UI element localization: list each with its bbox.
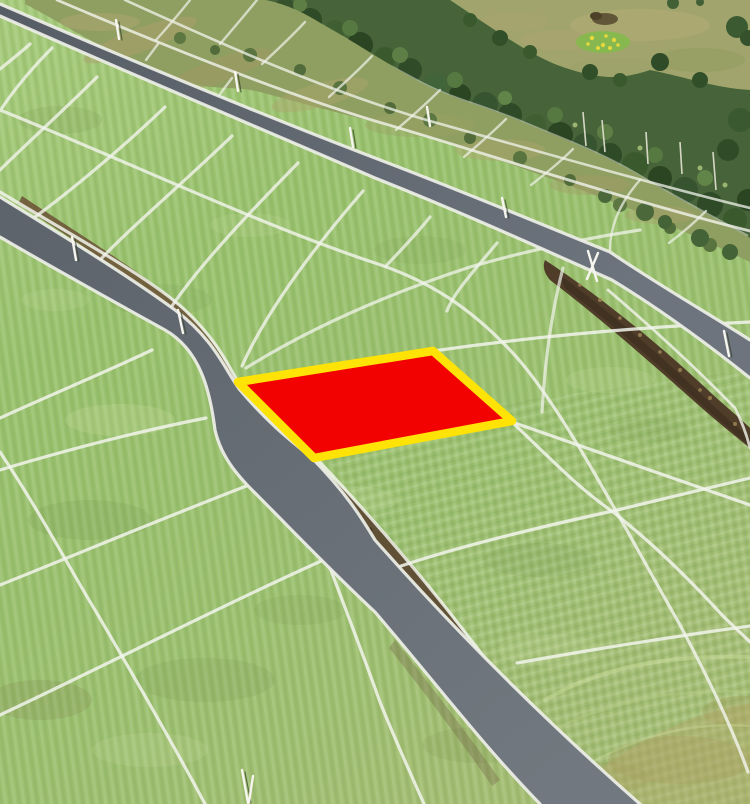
flower-patch xyxy=(576,31,630,53)
aerial-photo xyxy=(0,0,750,804)
